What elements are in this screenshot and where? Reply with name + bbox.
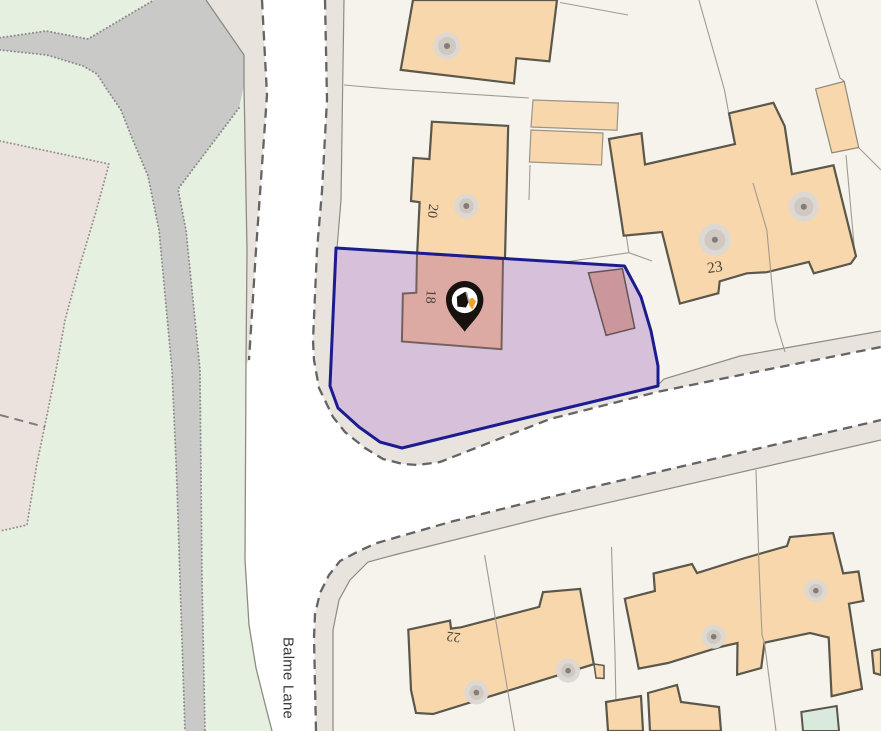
svg-text:23: 23 [706,258,724,277]
svg-text:18: 18 [422,289,438,304]
svg-text:Balme Lane: Balme Lane [280,637,297,719]
svg-text:22: 22 [446,628,462,645]
svg-text:20: 20 [424,203,441,219]
